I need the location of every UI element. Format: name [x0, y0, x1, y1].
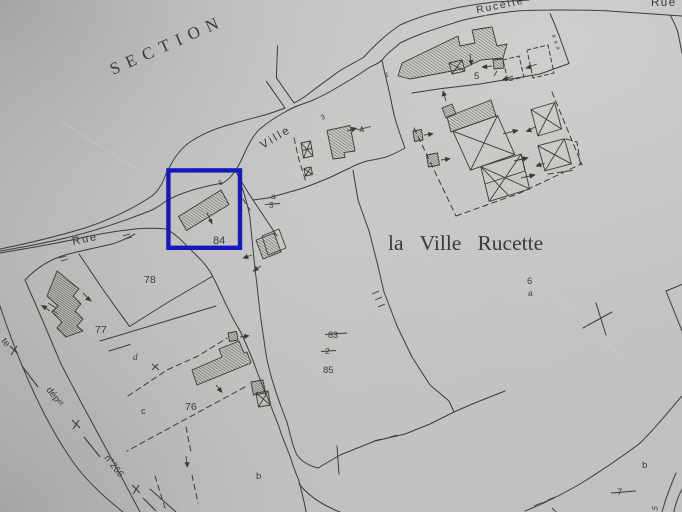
svg-text:85: 85 — [323, 365, 334, 376]
svg-text:6: 6 — [527, 276, 532, 287]
svg-text:Rue: Rue — [651, 0, 677, 9]
svg-text:la Ville Rucette: la Ville Rucette — [388, 231, 543, 255]
svg-text:3: 3 — [269, 201, 274, 210]
svg-text:84: 84 — [213, 235, 225, 247]
svg-text:1: 1 — [385, 72, 389, 79]
svg-text:c: c — [141, 406, 146, 417]
svg-text:5: 5 — [474, 71, 479, 82]
svg-text:b: b — [642, 460, 647, 471]
svg-text:b: b — [256, 471, 261, 482]
svg-text:a: a — [528, 288, 533, 298]
svg-text:77: 77 — [95, 324, 107, 336]
svg-text:76: 76 — [185, 401, 197, 413]
svg-text:78: 78 — [144, 274, 156, 286]
svg-text:a: a — [271, 191, 276, 201]
svg-text:83: 83 — [328, 330, 338, 340]
svg-text:d: d — [133, 352, 138, 362]
